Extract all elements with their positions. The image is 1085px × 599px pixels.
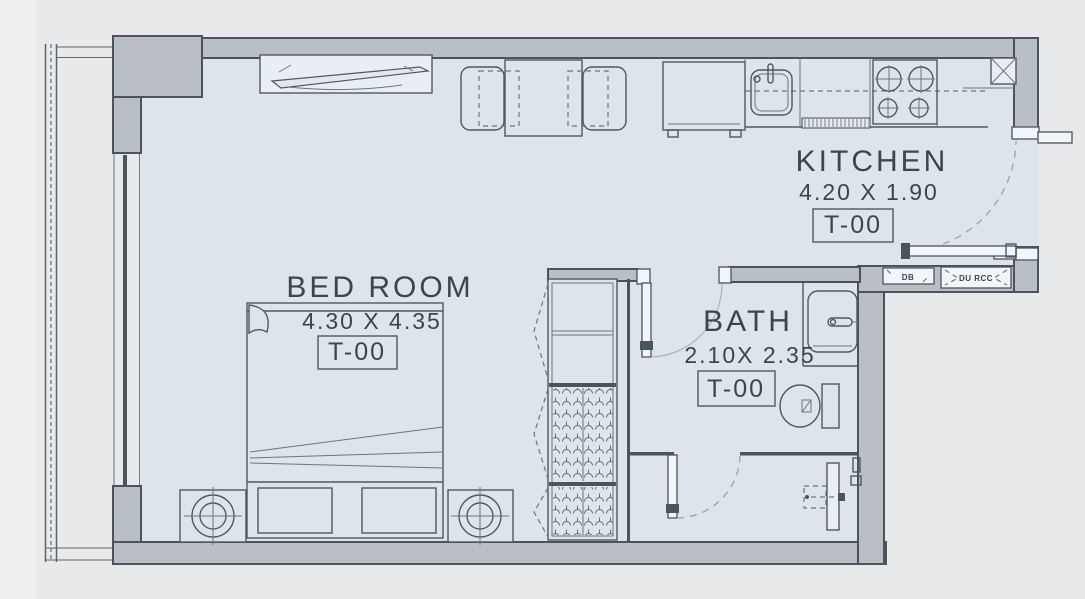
bedroom-dimensions: 4.30 X 4.35 [302, 308, 442, 334]
glass-panel-icon [123, 155, 127, 485]
bath-name: BATH [703, 305, 793, 338]
bath-dimensions: 2.10X 2.35 [684, 342, 815, 368]
kitchen-dimensions: 4.20 X 1.90 [799, 179, 939, 205]
floor-plan-drawing: DB DU RCC BED ROOM 4.30 X 4.35 T-00 KITC… [0, 0, 1085, 599]
toilet-icon [780, 384, 839, 428]
floor-plan: DB DU RCC BED ROOM 4.30 X 4.35 T-00 KITC… [0, 0, 1085, 599]
refrigerator-icon [663, 62, 745, 137]
kitchen-type-code: T-00 [824, 211, 882, 239]
db-label: DB [902, 273, 915, 282]
shower-partition [629, 452, 674, 456]
page-edge [0, 0, 36, 599]
db-tag: DB [883, 268, 934, 284]
kitchen-name: KITCHEN [796, 145, 949, 178]
tv-unit [260, 55, 432, 93]
shaft-icon [991, 58, 1016, 84]
vent-grill-icon [802, 118, 870, 128]
bedroom-type-code: T-00 [328, 338, 386, 366]
nightstand-right [448, 487, 513, 545]
du-rcc-tag: DU RCC [941, 267, 1011, 288]
bedroom-name: BED ROOM [286, 271, 473, 304]
du-rcc-label: DU RCC [959, 274, 993, 283]
bath-type-code: T-00 [707, 375, 765, 403]
nightstand-left [180, 487, 246, 545]
bath-partition [627, 279, 630, 542]
